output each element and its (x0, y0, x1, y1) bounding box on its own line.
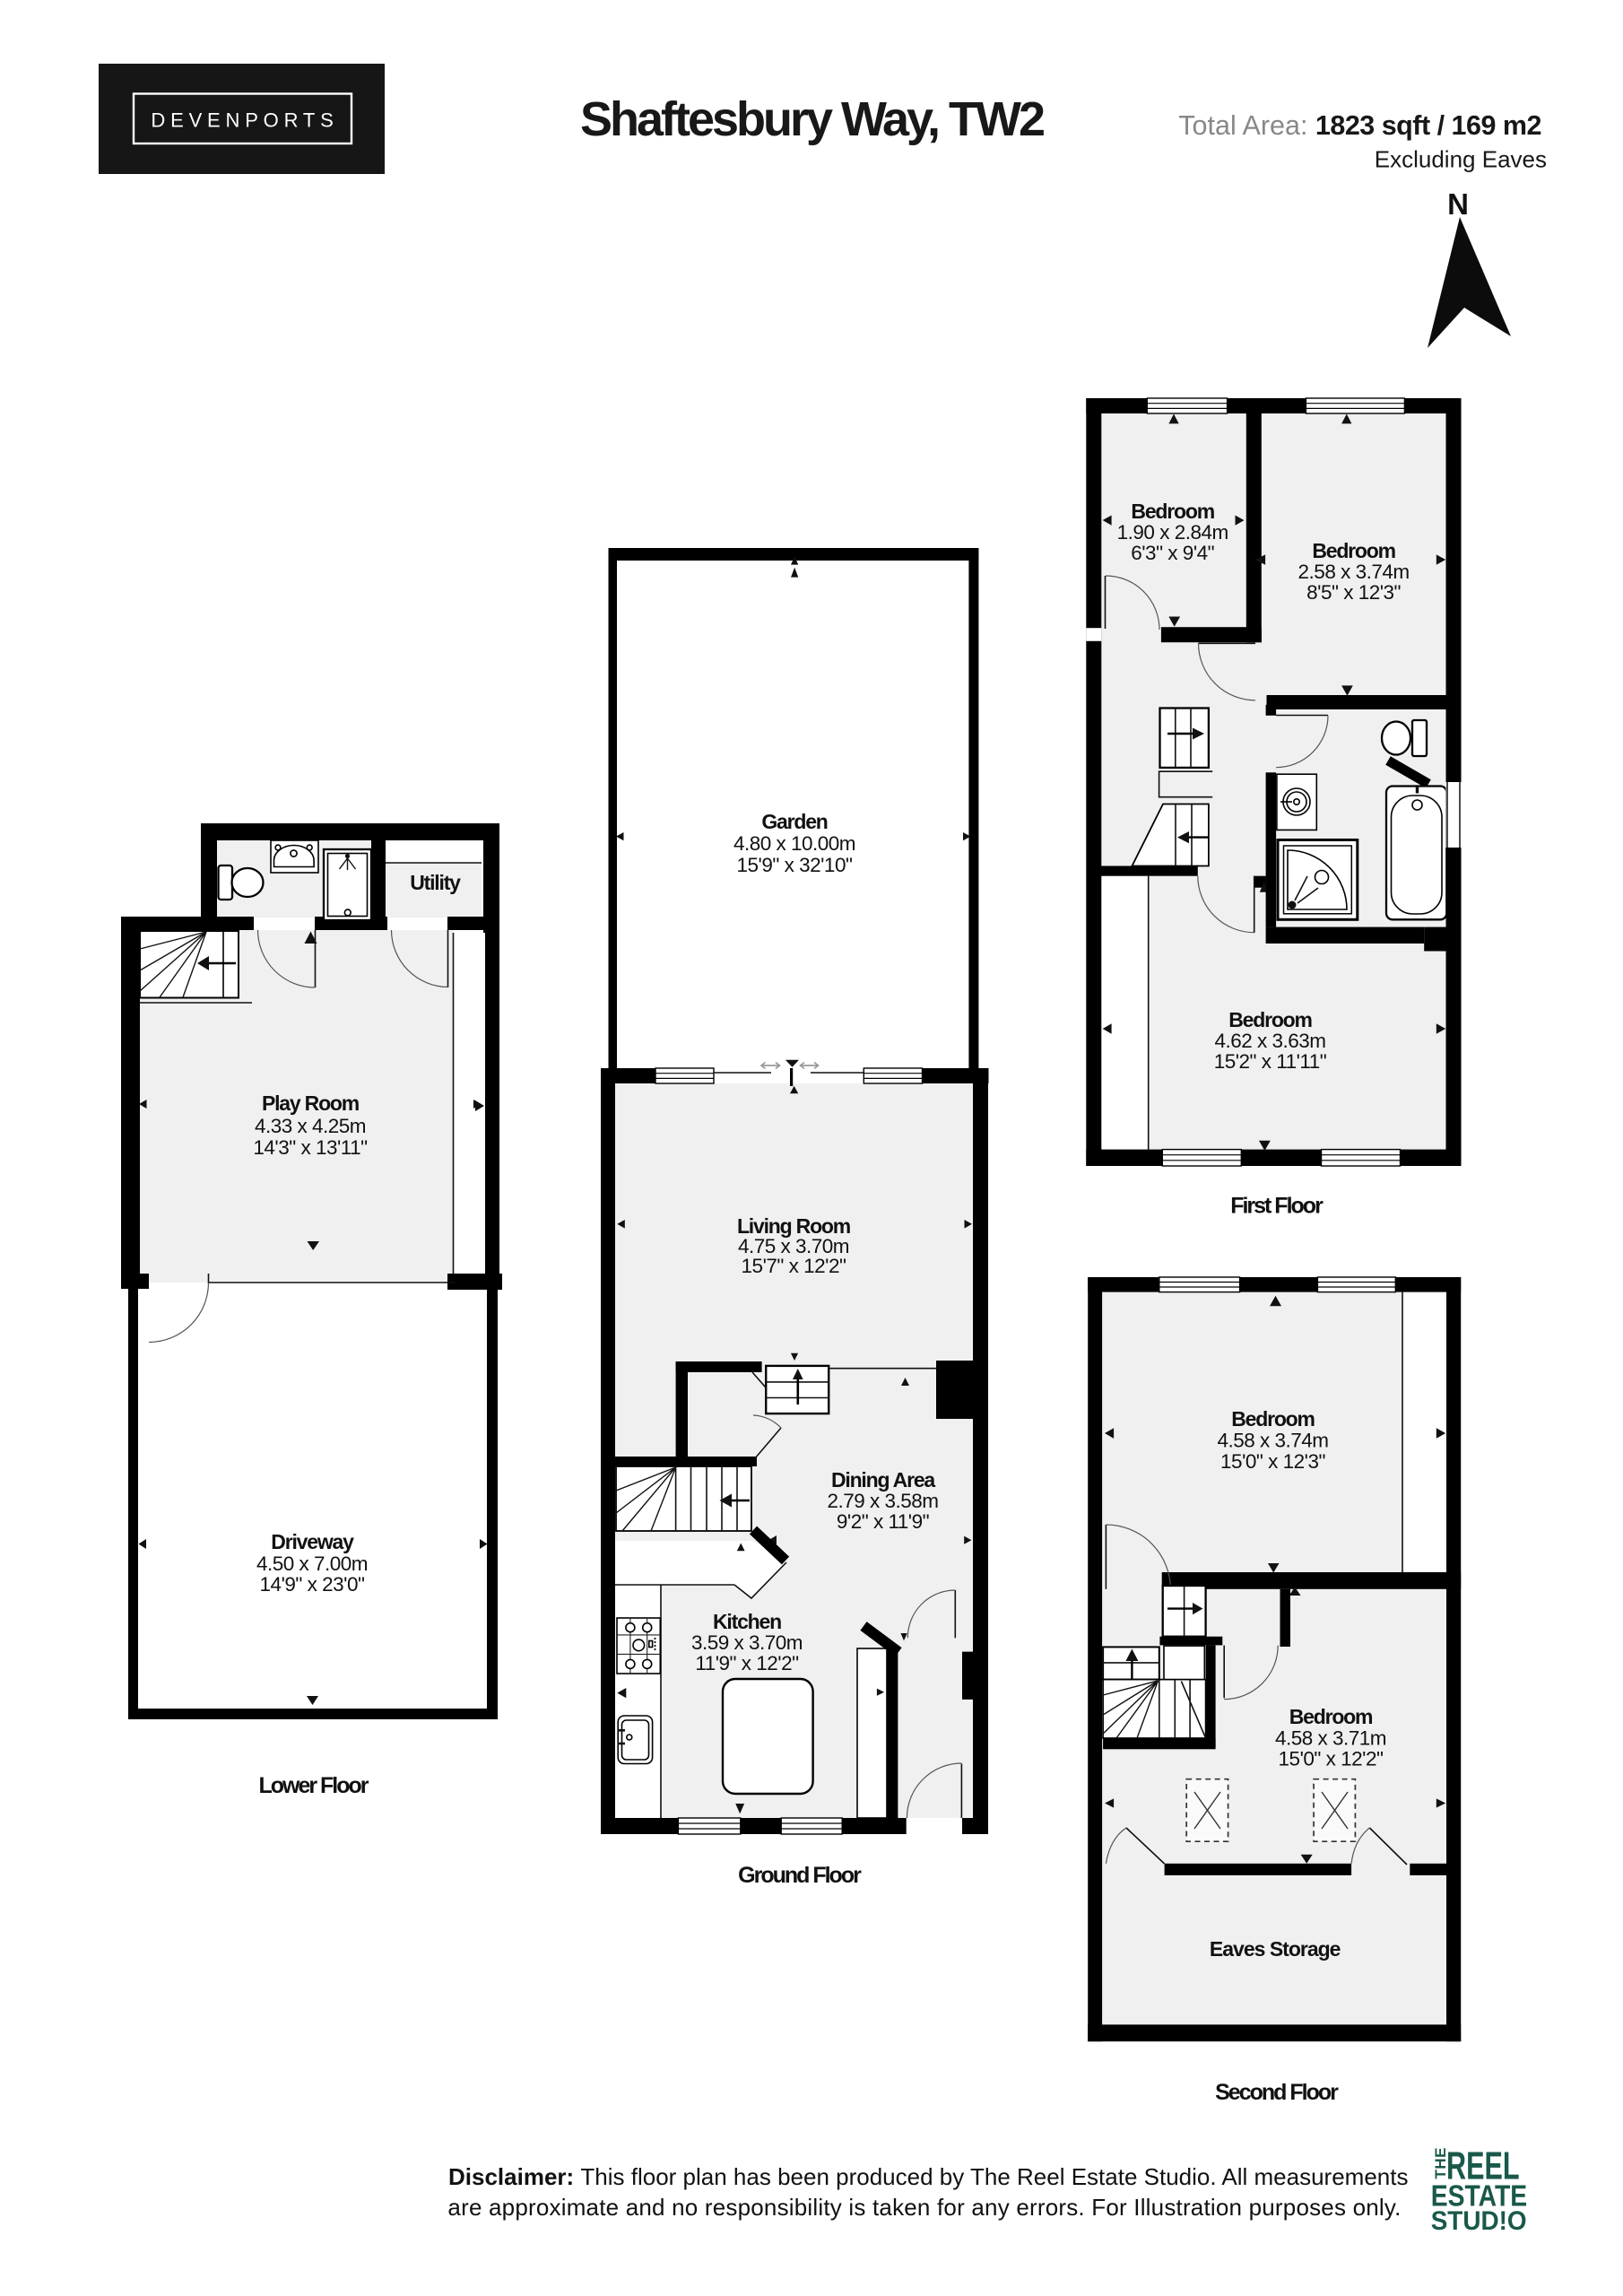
svg-text:15'9" x 32'10": 15'9" x 32'10" (737, 854, 853, 876)
svg-text:4.58 x 3.71m: 4.58 x 3.71m (1275, 1727, 1386, 1750)
svg-text:15'0" x 12'2": 15'0" x 12'2" (1279, 1748, 1384, 1770)
svg-text:Total Area: 1823 sqft / 169 m: Total Area: 1823 sqft / 169 m2 (1178, 110, 1541, 141)
svg-text:STUD!O: STUD!O (1431, 2206, 1527, 2236)
svg-text:1.90 x 2.84m: 1.90 x 2.84m (1117, 521, 1228, 544)
svg-text:Bedroom: Bedroom (1289, 1705, 1373, 1728)
svg-text:N: N (1447, 187, 1469, 221)
svg-text:First Floor: First Floor (1230, 1194, 1324, 1219)
svg-text:9'2" x 11'9": 9'2" x 11'9" (837, 1510, 930, 1533)
svg-text:15'0" x 12'3": 15'0" x 12'3" (1220, 1450, 1325, 1473)
svg-text:Bedroom: Bedroom (1228, 1008, 1312, 1031)
svg-text:Excluding Eaves: Excluding Eaves (1375, 146, 1547, 173)
svg-text:Second Floor: Second Floor (1215, 2080, 1339, 2105)
svg-text:4.58 x 3.74m: 4.58 x 3.74m (1217, 1430, 1328, 1452)
svg-text:2.79 x 3.58m: 2.79 x 3.58m (827, 1490, 938, 1512)
svg-text:14'9" x 23'0": 14'9" x 23'0" (260, 1573, 365, 1596)
svg-text:Play Room: Play Room (262, 1091, 360, 1115)
svg-text:DEVENPORTS: DEVENPORTS (151, 109, 338, 132)
svg-text:are approximate and no respons: are approximate and no responsibility is… (447, 2194, 1401, 2221)
svg-text:Bedroom: Bedroom (1231, 1407, 1315, 1431)
svg-text:Garden: Garden (761, 810, 827, 833)
svg-text:3.59 x 3.70m: 3.59 x 3.70m (691, 1631, 803, 1654)
svg-text:Eaves Storage: Eaves Storage (1210, 1937, 1341, 1961)
svg-text:2.58 x 3.74m: 2.58 x 3.74m (1298, 561, 1410, 583)
svg-text:Dining Area: Dining Area (831, 1468, 935, 1492)
svg-text:15'7" x 12'2": 15'7" x 12'2" (742, 1255, 846, 1277)
svg-text:Lower Floor: Lower Floor (258, 1773, 369, 1798)
svg-text:Bedroom: Bedroom (1131, 500, 1214, 523)
svg-text:6'3" x 9'4": 6'3" x 9'4" (1131, 542, 1214, 564)
svg-text:Utility: Utility (410, 871, 461, 894)
svg-text:Bedroom: Bedroom (1312, 539, 1395, 562)
svg-text:4.62 x 3.63m: 4.62 x 3.63m (1214, 1030, 1325, 1052)
svg-text:4.33 x 4.25m: 4.33 x 4.25m (255, 1115, 366, 1137)
svg-text:Ground Floor: Ground Floor (738, 1863, 862, 1888)
svg-text:4.50 x 7.00m: 4.50 x 7.00m (256, 1552, 368, 1575)
svg-text:11'9" x 12'2": 11'9" x 12'2" (695, 1652, 799, 1674)
svg-text:Kitchen: Kitchen (713, 1610, 781, 1633)
svg-text:14'3" x 13'11": 14'3" x 13'11" (253, 1136, 368, 1159)
svg-text:Disclaimer: This floor plan ha: Disclaimer: This floor plan has been pro… (448, 2163, 1408, 2190)
svg-text:15'2" x 11'11": 15'2" x 11'11" (1214, 1050, 1327, 1073)
svg-text:4.80 x 10.00m: 4.80 x 10.00m (733, 832, 855, 855)
svg-text:8'5" x 12'3": 8'5" x 12'3" (1306, 581, 1401, 604)
svg-text:Driveway: Driveway (271, 1530, 354, 1553)
svg-text:Shaftesbury Way, TW2: Shaftesbury Way, TW2 (580, 92, 1044, 146)
